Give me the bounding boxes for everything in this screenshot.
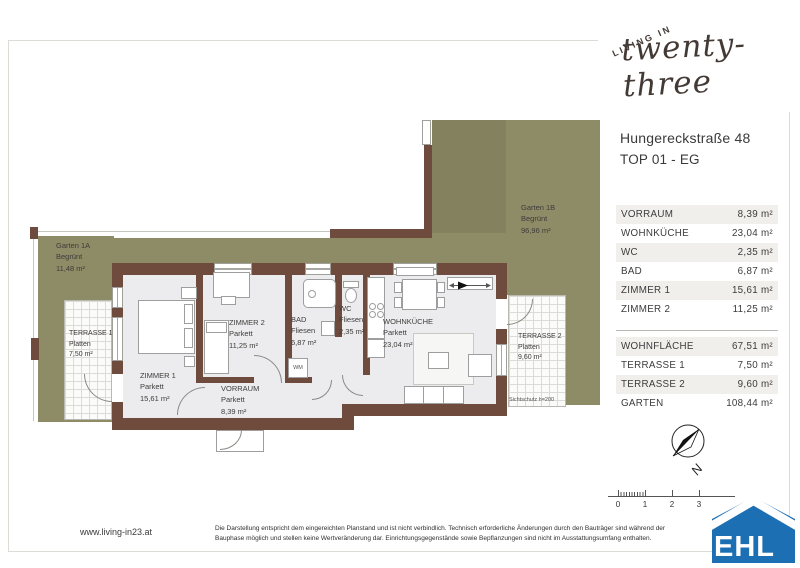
row-label: BAD [621,266,642,277]
area-tables: VORRAUM8,39 m² WOHNKÜCHE23,04 m² WC2,35 … [616,205,778,413]
room-name: WOHNKÜCHE [383,316,433,327]
room-name: WC [339,303,364,314]
room-area: 11,25 m² [229,340,265,351]
scale-label: 1 [638,500,652,509]
table-row: ZIMMER 115,61 m² [616,281,778,300]
ehl-logo: EHL [712,497,795,563]
table-row: ZIMMER 211,25 m² [616,300,778,319]
disclaimer-line: Die Darstellung entspricht dem eingereic… [215,524,710,534]
room-area: 9,60 m² [518,353,562,364]
room-name: Garten 1B [521,202,555,213]
ehl-logo-graphic: EHL [712,497,795,563]
row-label: ZIMMER 2 [621,304,670,315]
room-area: 15,61 m² [140,393,176,404]
website-url: www.living-in23.at [80,527,152,537]
room-area: 8,39 m² [221,406,259,417]
zimmer2-label: ZIMMER 2 Parkett 11,25 m² [229,317,265,351]
garden-1a-label: Garten 1A Begrünt 11,48 m² [56,240,90,274]
row-label: WOHNFLÄCHE [621,341,694,352]
scale-tick [672,490,673,497]
room-name: VORRAUM [221,383,259,394]
vorraum-label: VORRAUM Parkett 8,39 m² [221,383,259,417]
table-row: WOHNKÜCHE23,04 m² [616,224,778,243]
row-value: 67,51 m² [732,341,773,352]
room-area: 7,50 m² [69,350,113,361]
row-label: WOHNKÜCHE [621,228,689,239]
row-value: 11,25 m² [733,304,773,315]
zimmer1-label: ZIMMER 1 Parkett 15,61 m² [140,370,176,404]
compass-icon [666,421,710,465]
table-row: BAD6,87 m² [616,262,778,281]
room-name: BAD [291,314,316,325]
table-row: TERRASSE 29,60 m² [616,375,778,394]
table-row: GARTEN108,44 m² [616,394,778,413]
room-finish: Begrünt [56,251,90,262]
row-label: TERRASSE 1 [621,360,685,371]
table-row: VORRAUM8,39 m² [616,205,778,224]
room-name: TERRASSE 2 [518,332,562,343]
disclaimer-line: Bauphase möglich und stellen keine Wertv… [215,534,710,544]
terrace-2-label: TERRASSE 2 Platten 9,60 m² [518,332,562,364]
table-divider [616,330,778,331]
row-value: 2,35 m² [738,247,773,258]
room-name: ZIMMER 1 [140,370,176,381]
privacy-screen-note: Sichtschutz h=200 [509,397,554,403]
scale-tick [699,490,700,497]
garden-1b-label: Garten 1B Begrünt 96,96 m² [521,202,555,236]
row-label: VORRAUM [621,209,673,220]
room-area: 6,87 m² [291,337,316,348]
table-row: TERRASSE 17,50 m² [616,356,778,375]
row-label: TERRASSE 2 [621,379,685,390]
table-row: WOHNFLÄCHE67,51 m² [616,337,778,356]
bad-label: BAD Fliesen 6,87 m² [291,314,316,348]
room-area: 23,04 m² [383,339,433,350]
room-area: 96,96 m² [521,225,555,236]
wc-label: WC Fliesen 2,35 m² [339,303,364,337]
row-value: 8,39 m² [738,209,773,220]
row-value: 6,87 m² [738,266,773,277]
scale-tick [645,490,646,497]
table-row: WC2,35 m² [616,243,778,262]
room-finish: Platten [518,343,562,354]
disclaimer-text: Die Darstellung entspricht dem eingereic… [215,524,710,544]
room-name: Garten 1A [56,240,90,251]
room-area: 11,48 m² [56,263,90,274]
brand-script-logo: twenty-three [620,24,794,105]
row-value: 9,60 m² [738,379,773,390]
room-finish: Fliesen [291,325,316,336]
room-name: ZIMMER 2 [229,317,265,328]
scale-minor-ticks [618,492,645,497]
row-label: WC [621,247,638,258]
wohnkueche-label: WOHNKÜCHE Parkett 23,04 m² [383,316,433,350]
row-value: 15,61 m² [732,285,773,296]
room-finish: Begrünt [521,213,555,224]
room-finish: Parkett [383,327,433,338]
row-label: ZIMMER 1 [621,285,670,296]
scale-label: 3 [692,500,706,509]
ehl-logo-text: EHL [714,531,775,563]
room-finish: Parkett [140,381,176,392]
row-value: 7,50 m² [738,360,773,371]
room-finish: Parkett [229,328,265,339]
brand-logo: LIVING IN twenty-three [598,2,792,112]
row-label: GARTEN [621,398,663,409]
row-value: 23,04 m² [732,228,773,239]
room-name: TERRASSE 1 [69,329,113,340]
row-value: 108,44 m² [726,398,773,409]
terrace-1-label: TERRASSE 1 Platten 7,50 m² [69,329,113,361]
room-finish: Platten [69,340,113,351]
scale-label: 2 [665,500,679,509]
room-area: 2,35 m² [339,326,364,337]
room-finish: Fliesen [339,314,364,325]
room-finish: Parkett [221,394,259,405]
scale-label: 0 [611,500,625,509]
